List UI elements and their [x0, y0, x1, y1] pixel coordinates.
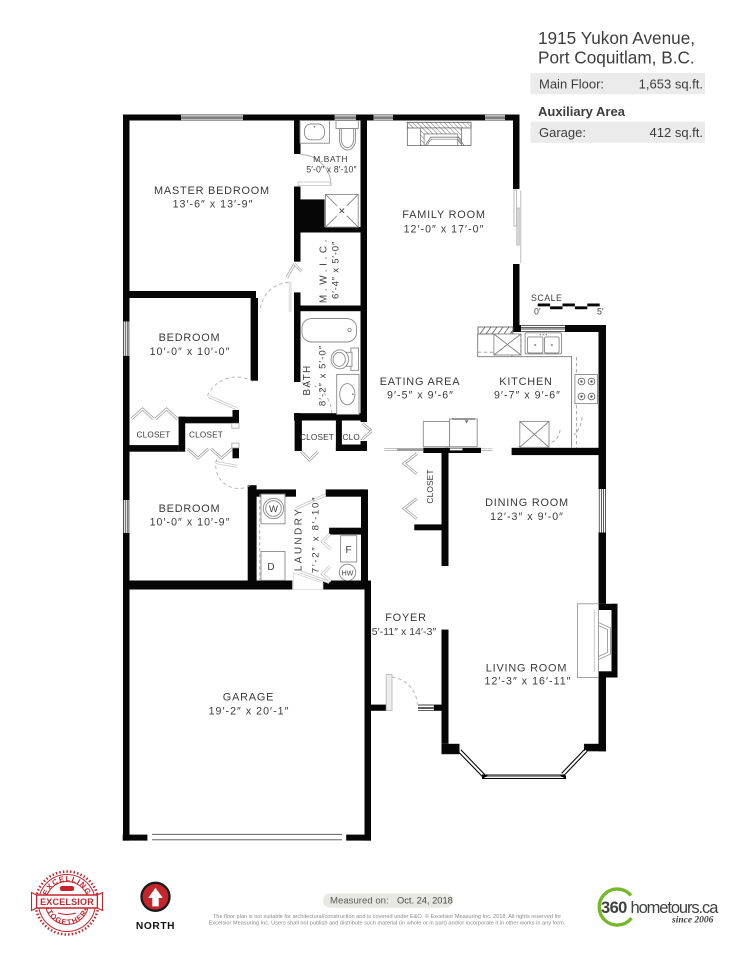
svg-text:12′-3″ x 16′-11″: 12′-3″ x 16′-11″: [485, 676, 572, 688]
svg-text:hometours.ca: hometours.ca: [631, 899, 720, 917]
svg-text:12′-0″ x 17′-0″: 12′-0″ x 17′-0″: [404, 224, 485, 236]
svg-text:SCALE: SCALE: [531, 293, 562, 303]
svg-text:5′-11″ x 14′-3″: 5′-11″ x 14′-3″: [372, 627, 437, 638]
svg-text:Auxiliary Area: Auxiliary Area: [538, 104, 626, 119]
svg-text:GARAGE: GARAGE: [223, 692, 274, 704]
svg-text:LIVING ROOM: LIVING ROOM: [486, 663, 567, 675]
svg-text:CLOSET: CLOSET: [137, 431, 171, 440]
svg-text:13′-6″ x 13′-9″: 13′-6″ x 13′-9″: [173, 199, 254, 211]
svg-text:MASTER BEDROOM: MASTER BEDROOM: [154, 185, 270, 197]
svg-text:EXCELSIOR: EXCELSIOR: [40, 897, 94, 907]
svg-text:5′: 5′: [597, 307, 604, 317]
svg-text:0′: 0′: [534, 307, 541, 317]
svg-text:NORTH: NORTH: [136, 921, 175, 932]
svg-text:FOYER: FOYER: [385, 612, 427, 624]
svg-text:5′-0″ x 8′-10″: 5′-0″ x 8′-10″: [306, 165, 357, 175]
svg-text:CLOSET: CLOSET: [300, 433, 334, 442]
svg-text:DINING ROOM: DINING ROOM: [485, 497, 569, 509]
svg-text:The floor plan is not suitable: The floor plan is not suitable for archi…: [213, 913, 561, 920]
svg-text:F: F: [346, 545, 352, 556]
svg-text:FAMILY ROOM: FAMILY ROOM: [402, 209, 485, 221]
svg-text:BEDROOM: BEDROOM: [159, 503, 221, 515]
svg-text:10′-0″ x 10′-9″: 10′-0″ x 10′-9″: [150, 517, 231, 529]
svg-text:7′-2″ x 8′-10″: 7′-2″ x 8′-10″: [311, 496, 322, 573]
svg-text:1915 Yukon Avenue,: 1915 Yukon Avenue,: [538, 28, 695, 48]
svg-text:Port Coquitlam, B.C.: Port Coquitlam, B.C.: [538, 48, 695, 68]
svg-text:since 2006: since 2006: [671, 916, 714, 926]
svg-text:Oct. 24, 2018: Oct. 24, 2018: [397, 896, 453, 906]
svg-text:10′-0″ x 10′-0″: 10′-0″ x 10′-0″: [150, 346, 231, 358]
svg-text:BEDROOM: BEDROOM: [159, 332, 221, 344]
svg-text:CLO.: CLO.: [343, 433, 363, 442]
svg-text:HW: HW: [342, 570, 354, 577]
svg-text:LAUNDRY: LAUNDRY: [294, 507, 305, 571]
svg-text:Garage:: Garage:: [539, 125, 586, 140]
svg-text:M.W.I.C.: M.W.I.C.: [319, 236, 330, 303]
svg-text:CLOSET: CLOSET: [425, 469, 435, 503]
svg-text:6′-4″ x 5′-0″: 6′-4″ x 5′-0″: [331, 241, 342, 299]
svg-text:M.BATH: M.BATH: [313, 154, 348, 164]
svg-text:CLOSET: CLOSET: [189, 431, 223, 440]
svg-text:19′-2″ x 20′-1″: 19′-2″ x 20′-1″: [209, 706, 290, 718]
svg-text:D: D: [267, 562, 274, 573]
svg-text:412 sq.ft.: 412 sq.ft.: [650, 125, 703, 140]
svg-text:EATING AREA: EATING AREA: [380, 376, 461, 388]
svg-text:12′-3″ x 9′-0″: 12′-3″ x 9′-0″: [490, 511, 564, 523]
svg-text:Measured on:: Measured on:: [330, 896, 389, 907]
svg-text:Excelsior Measuring Inc. Users: Excelsior Measuring Inc. Users shall not…: [209, 921, 566, 927]
svg-text:9′-5″ x 9′-6″: 9′-5″ x 9′-6″: [387, 390, 454, 402]
svg-text:8′-2″ x 5′-0″: 8′-2″ x 5′-0″: [318, 345, 329, 406]
svg-text:1,653 sq.ft.: 1,653 sq.ft.: [639, 77, 703, 92]
svg-text:KITCHEN: KITCHEN: [499, 376, 552, 388]
svg-text:360: 360: [601, 899, 627, 917]
svg-text:BATH: BATH: [302, 364, 313, 395]
svg-text:Main Floor:: Main Floor:: [539, 77, 604, 92]
svg-text:9′-7″ x 9′-6″: 9′-7″ x 9′-6″: [494, 390, 561, 402]
svg-text:W: W: [269, 504, 278, 515]
